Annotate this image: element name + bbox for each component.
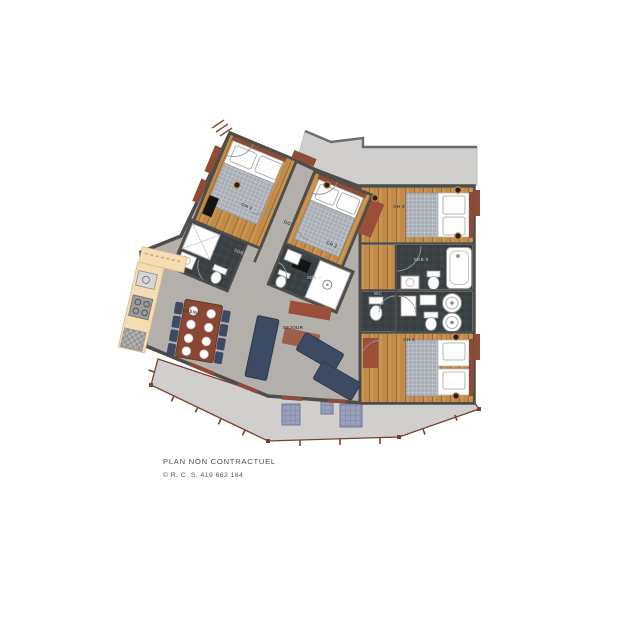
balcony-divider xyxy=(474,190,480,216)
sdb3-sink xyxy=(401,276,419,289)
wc-toilet-bowl xyxy=(370,306,382,321)
label-sejour: SEJOUR xyxy=(283,325,304,330)
ch4-headboard xyxy=(469,339,474,396)
bathroom-sdb3 xyxy=(396,245,472,290)
laundry-room xyxy=(397,292,472,332)
ch3-headboard xyxy=(469,192,474,238)
floor-plan-stage: CH 1 DGT CH 2 CH 3 CH 4 SDB 1 SDB 2 SDB … xyxy=(0,0,640,638)
kitchen-stove xyxy=(129,295,153,320)
footer-registration: © R. C. S. 419 662 184 xyxy=(163,472,243,479)
label-sdb2: SDB 2 xyxy=(307,275,322,280)
balcony-divider xyxy=(474,334,480,360)
label-ch3: CH 3 xyxy=(393,204,405,209)
ch3-pillow xyxy=(443,196,465,214)
terrace-table xyxy=(340,404,362,427)
label-wc: WC xyxy=(374,291,383,296)
ch4-pillow xyxy=(443,343,465,360)
ch4-wardrobe xyxy=(363,338,378,368)
hall-floor xyxy=(361,245,395,290)
ch4-pillow xyxy=(443,372,465,389)
floor-plan: CH 1 DGT CH 2 CH 3 CH 4 SDB 1 SDB 2 SDB … xyxy=(0,0,640,638)
ch4-beds-duvet xyxy=(406,340,440,396)
ch3-bed-duvet xyxy=(406,193,440,237)
footer-disclaimer: PLAN NON CONTRACTUEL xyxy=(163,457,276,466)
wc-room xyxy=(361,292,395,331)
ch3-pillow xyxy=(443,217,465,235)
terrace-table xyxy=(282,404,300,425)
bathtub-drain xyxy=(456,254,460,258)
sdb3-toilet-bowl xyxy=(428,277,439,290)
laundry-sink xyxy=(420,295,436,305)
wc-toilet-tank xyxy=(369,297,383,304)
dining-set xyxy=(166,298,231,365)
room-ch4 xyxy=(360,334,474,402)
laundry-toilet-bowl xyxy=(426,318,437,331)
terrace-table xyxy=(321,402,333,414)
label-ch4: CH 4 xyxy=(403,337,415,342)
label-sdb3: SDB 3 xyxy=(414,257,429,262)
